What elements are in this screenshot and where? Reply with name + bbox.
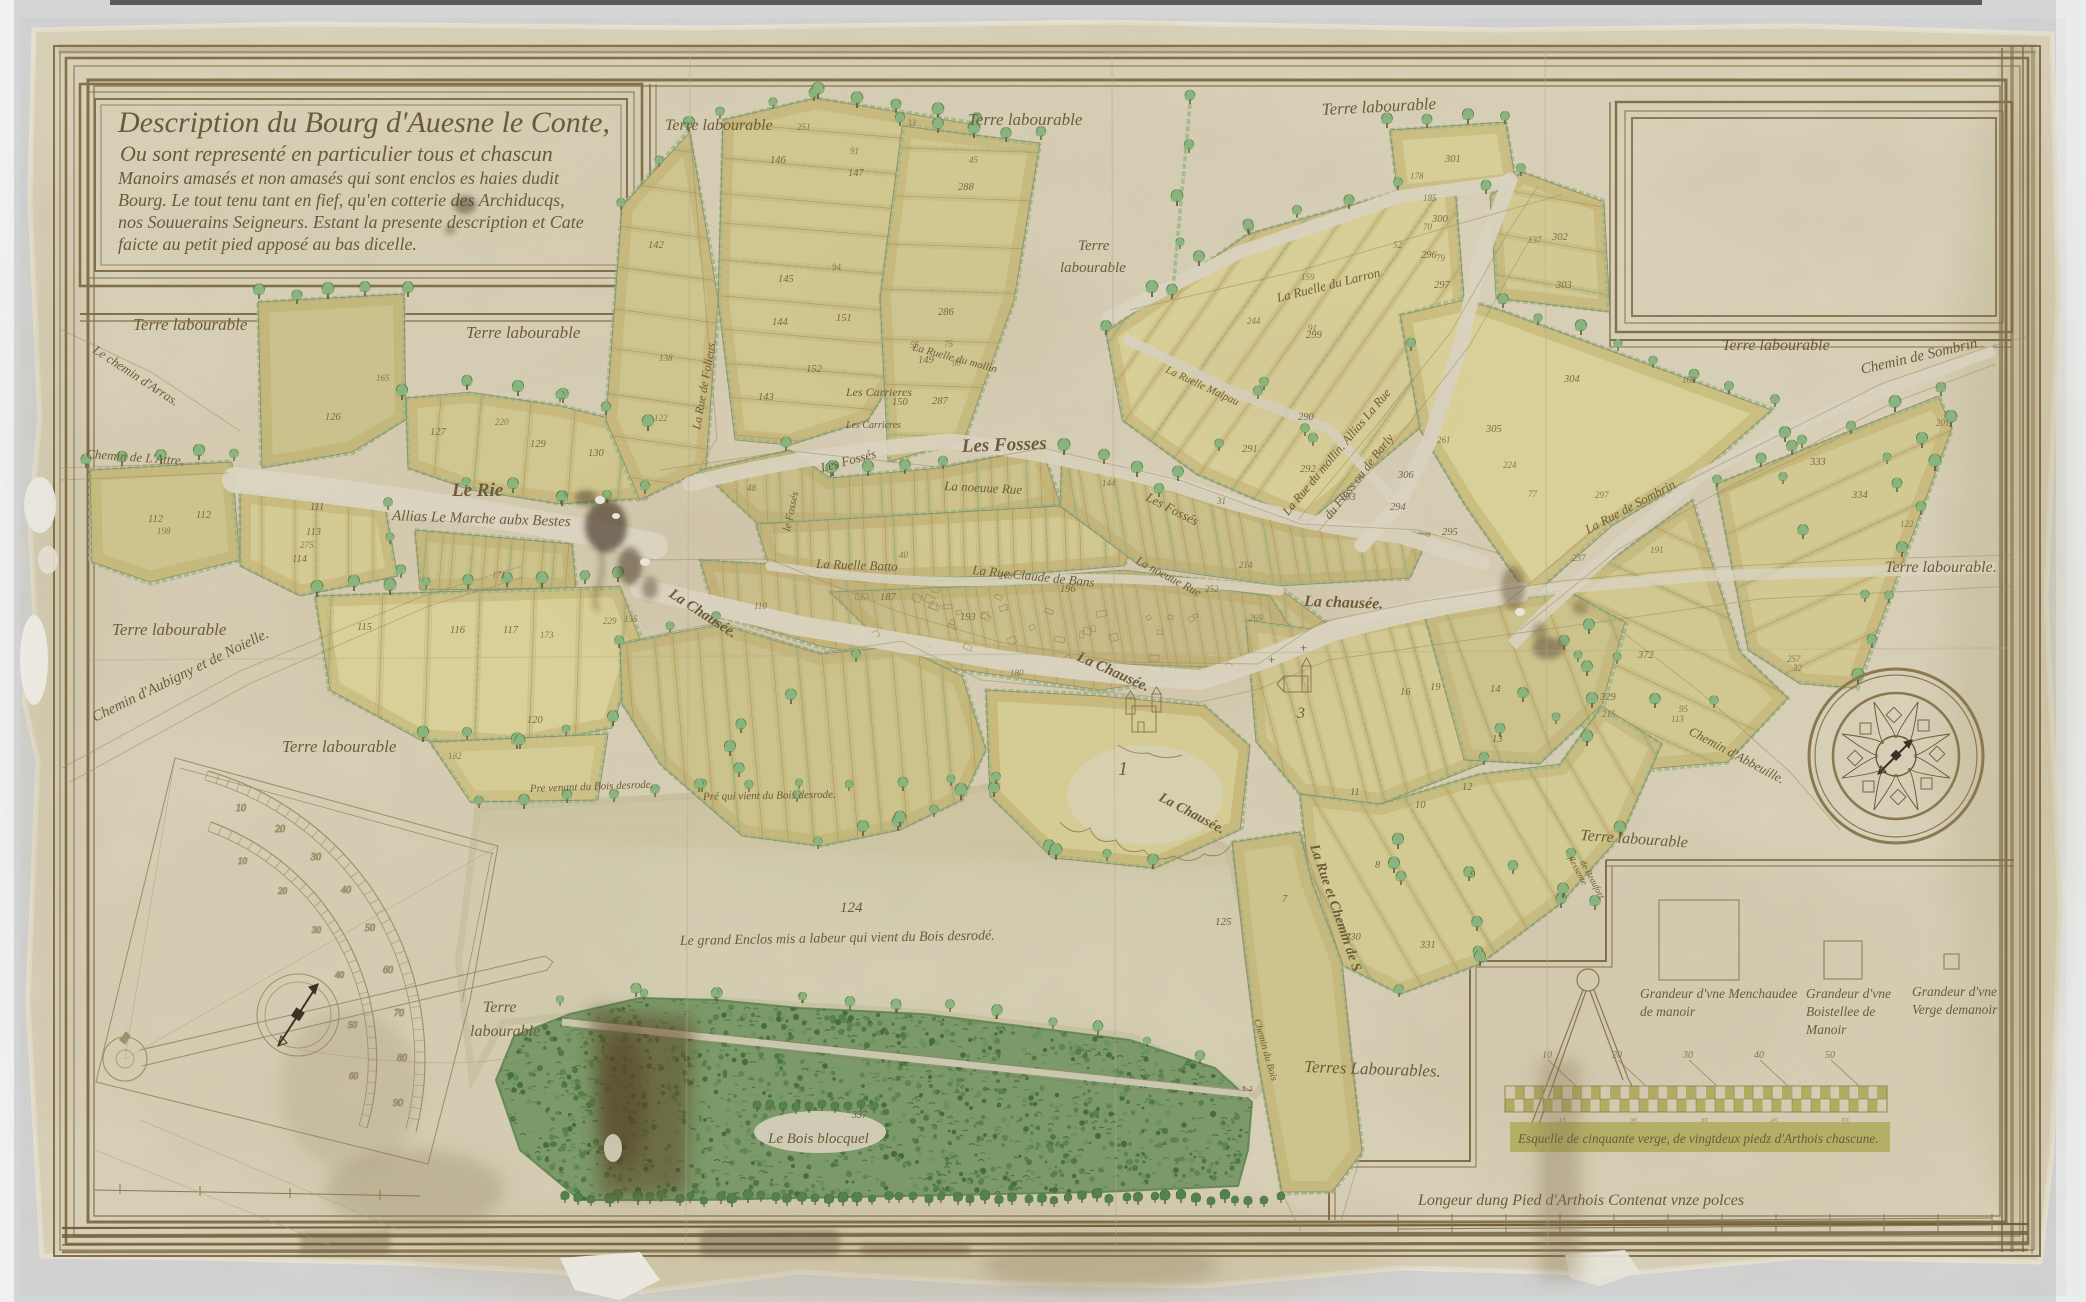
svg-text:185: 185 — [1423, 193, 1437, 203]
svg-text:124: 124 — [840, 900, 863, 916]
svg-text:196: 196 — [1060, 584, 1077, 595]
svg-text:159: 159 — [1301, 272, 1315, 282]
svg-text:70: 70 — [394, 1008, 404, 1019]
svg-text:135: 135 — [624, 614, 638, 624]
svg-text:75: 75 — [944, 339, 954, 349]
svg-text:12: 12 — [1462, 782, 1473, 793]
svg-text:faicte au petit pied apposé au: faicte au petit pied apposé au bas dicel… — [118, 234, 417, 254]
svg-text:337: 337 — [851, 1110, 868, 1121]
svg-text:10: 10 — [236, 803, 246, 814]
svg-text:372: 372 — [1637, 650, 1655, 661]
svg-text:Grandeur d'vne: Grandeur d'vne — [1912, 984, 1997, 999]
svg-text:Manoir: Manoir — [1805, 1022, 1847, 1037]
svg-text:171: 171 — [492, 570, 506, 580]
svg-text:137: 137 — [1528, 235, 1542, 245]
svg-text:Grandeur d'vne: Grandeur d'vne — [1806, 986, 1891, 1001]
svg-text:297: 297 — [1434, 280, 1451, 291]
svg-text:50: 50 — [1825, 1050, 1835, 1061]
svg-text:Terre labourable: Terre labourable — [133, 315, 248, 334]
svg-text:30: 30 — [311, 925, 322, 935]
svg-text:287: 287 — [932, 396, 949, 407]
svg-text:de manoir: de manoir — [1640, 1004, 1696, 1019]
svg-text:117: 117 — [503, 625, 519, 636]
svg-text:Grandeur d'vne Menchaudee: Grandeur d'vne Menchaudee — [1640, 986, 1797, 1001]
svg-text:Verge demanoir: Verge demanoir — [1912, 1002, 1998, 1017]
svg-text:304: 304 — [1563, 374, 1581, 385]
svg-text:7: 7 — [1282, 894, 1288, 905]
svg-text:178: 178 — [1410, 171, 1424, 181]
svg-text:302: 302 — [1551, 232, 1569, 243]
svg-text:169: 169 — [1682, 375, 1696, 385]
svg-text:30: 30 — [1682, 1050, 1693, 1061]
svg-text:130: 130 — [588, 448, 605, 459]
svg-text:91: 91 — [850, 146, 859, 156]
svg-text:198: 198 — [157, 526, 171, 536]
svg-text:labourable: labourable — [1060, 260, 1126, 276]
svg-text:79: 79 — [1436, 253, 1446, 263]
svg-text:13: 13 — [1492, 734, 1503, 745]
svg-text:20: 20 — [1612, 1050, 1622, 1061]
svg-text:Manoirs amasés et non amasés q: Manoirs amasés et non amasés qui sont en… — [117, 168, 560, 188]
svg-text:Terre labourable.: Terre labourable. — [1885, 559, 1997, 576]
svg-text:Terre labourable: Terre labourable — [282, 737, 397, 756]
svg-text:110: 110 — [754, 601, 767, 611]
svg-text:50: 50 — [365, 923, 375, 934]
svg-text:142: 142 — [648, 240, 665, 251]
svg-text:11: 11 — [1350, 787, 1360, 798]
svg-text:nos Souuerains Seigneurs. Esta: nos Souuerains Seigneurs. Estant la pres… — [118, 212, 584, 232]
svg-text:90: 90 — [952, 358, 962, 368]
svg-text:220: 220 — [495, 417, 509, 427]
svg-text:32: 32 — [1792, 663, 1803, 673]
svg-text:122: 122 — [654, 413, 668, 423]
svg-text:16: 16 — [1400, 687, 1411, 698]
svg-text:40: 40 — [1754, 1050, 1764, 1061]
svg-text:187: 187 — [880, 592, 897, 603]
svg-text:224: 224 — [1503, 460, 1517, 470]
svg-text:214: 214 — [1239, 560, 1253, 570]
svg-text:14: 14 — [1490, 684, 1501, 695]
svg-text:300: 300 — [1431, 214, 1449, 225]
svg-text:193: 193 — [960, 612, 976, 623]
svg-text:Terre labourable: Terre labourable — [466, 323, 581, 342]
svg-text:149: 149 — [918, 355, 935, 366]
svg-text:297: 297 — [1595, 490, 1609, 500]
svg-text:305: 305 — [1485, 424, 1502, 435]
svg-text:173: 173 — [540, 630, 554, 640]
svg-text:116: 116 — [450, 625, 466, 636]
svg-text:294: 294 — [1390, 502, 1407, 513]
svg-text:144: 144 — [772, 317, 789, 328]
svg-text:120: 120 — [527, 715, 544, 726]
svg-text:329: 329 — [1599, 692, 1617, 703]
svg-text:301: 301 — [1444, 154, 1461, 165]
svg-text:+: + — [1268, 652, 1275, 667]
svg-text:40: 40 — [899, 550, 909, 560]
svg-text:20: 20 — [275, 824, 285, 835]
svg-text:291: 291 — [1242, 444, 1258, 455]
svg-text:3: 3 — [1296, 705, 1305, 722]
svg-text:146: 146 — [770, 155, 787, 166]
svg-text:94: 94 — [832, 262, 842, 272]
svg-text:60: 60 — [383, 965, 393, 976]
svg-text:Boistellee de: Boistellee de — [1806, 1004, 1875, 1019]
svg-text:150: 150 — [892, 397, 909, 408]
svg-text:19: 19 — [1430, 682, 1441, 693]
svg-text:292: 292 — [1300, 464, 1317, 475]
svg-text:91: 91 — [1308, 323, 1317, 333]
svg-text:143: 143 — [758, 392, 774, 403]
svg-text:Terre: Terre — [1078, 238, 1110, 254]
svg-text:Terre labourable: Terre labourable — [665, 117, 773, 134]
svg-text:127: 127 — [430, 427, 447, 438]
svg-text:290: 290 — [1298, 412, 1315, 423]
svg-text:La chausée.: La chausée. — [1303, 593, 1384, 613]
svg-text:252: 252 — [1205, 584, 1219, 594]
svg-text:33: 33 — [906, 118, 917, 128]
svg-text:145: 145 — [778, 274, 794, 285]
svg-text:261: 261 — [1437, 435, 1451, 445]
svg-text:48: 48 — [747, 483, 757, 493]
svg-text:288: 288 — [958, 182, 975, 193]
svg-text:40: 40 — [341, 885, 351, 896]
svg-text:Le Rie: Le Rie — [451, 480, 504, 501]
svg-text:Le Bois blocquel: Le Bois blocquel — [767, 1131, 869, 1147]
svg-text:Description du Bourg d'Auesne: Description du Bourg d'Auesne le Conte, — [117, 106, 610, 139]
svg-text:303: 303 — [1555, 280, 1572, 291]
svg-text:52: 52 — [1393, 240, 1403, 250]
svg-text:333: 333 — [1809, 457, 1826, 468]
svg-text:113: 113 — [1671, 714, 1684, 724]
svg-text:labourable: labourable — [470, 1023, 540, 1040]
svg-text:244: 244 — [1247, 316, 1261, 326]
svg-text:Pré qui vient du Bois desrode.: Pré qui vient du Bois desrode. — [702, 789, 836, 803]
svg-text:229: 229 — [603, 616, 617, 626]
svg-text:251: 251 — [797, 122, 811, 132]
svg-text:Terre: Terre — [483, 999, 517, 1016]
svg-text:138: 138 — [659, 353, 673, 363]
svg-text:10: 10 — [1415, 800, 1426, 811]
svg-text:152: 152 — [806, 364, 823, 375]
svg-text:Ou sont representé en particul: Ou sont representé en particulier tous e… — [120, 141, 553, 166]
svg-text:95: 95 — [1679, 704, 1689, 714]
svg-text:122: 122 — [1900, 519, 1914, 529]
svg-text:Bourg. Le tout tenu tant en fi: Bourg. Le tout tenu tant en fief, qu'en … — [118, 190, 565, 210]
svg-text:31: 31 — [1216, 496, 1226, 506]
svg-text:191: 191 — [1650, 545, 1664, 555]
svg-text:Terre labourable: Terre labourable — [968, 110, 1083, 129]
svg-text:269: 269 — [1249, 613, 1263, 623]
svg-text:77: 77 — [1528, 489, 1538, 499]
svg-text:151: 151 — [836, 313, 852, 324]
svg-text:Terre labourable: Terre labourable — [1722, 337, 1830, 354]
svg-text:125: 125 — [1215, 916, 1232, 928]
svg-text:30: 30 — [310, 852, 321, 863]
svg-text:1: 1 — [1118, 758, 1128, 780]
svg-text:215: 215 — [1602, 709, 1616, 719]
svg-text:113: 113 — [306, 527, 321, 538]
svg-text:165: 165 — [376, 373, 390, 383]
svg-text:Longeur dung Pied d'Arthois C: Longeur dung Pied d'Arthois Contenat vnz… — [1417, 1192, 1744, 1209]
svg-text:70: 70 — [1423, 222, 1433, 232]
svg-text:40: 40 — [335, 970, 345, 980]
svg-text:147: 147 — [848, 168, 865, 179]
svg-text:111: 111 — [310, 502, 324, 513]
svg-text:Terre labourable: Terre labourable — [112, 620, 227, 639]
svg-text:180: 180 — [1010, 668, 1024, 678]
svg-text:112: 112 — [148, 514, 164, 525]
svg-text:115: 115 — [357, 622, 372, 633]
svg-text:45: 45 — [969, 155, 979, 165]
svg-text:306: 306 — [1397, 470, 1415, 481]
svg-text:112: 112 — [196, 510, 212, 521]
svg-text:Les Fosses: Les Fosses — [960, 433, 1047, 457]
svg-text:334: 334 — [1851, 490, 1869, 501]
svg-text:8: 8 — [1375, 860, 1381, 871]
svg-text:275: 275 — [300, 540, 314, 550]
svg-text:330: 330 — [1344, 932, 1362, 943]
svg-text:293: 293 — [1340, 492, 1356, 503]
svg-text:9: 9 — [1470, 870, 1476, 881]
svg-text:295: 295 — [1442, 527, 1458, 538]
svg-text:126: 126 — [325, 412, 342, 423]
svg-text:La Ruelle Batto: La Ruelle Batto — [815, 556, 899, 574]
svg-text:Les Carrieres: Les Carrieres — [845, 420, 901, 431]
svg-text:129: 129 — [530, 439, 547, 450]
svg-text:10: 10 — [238, 856, 248, 866]
svg-text:55: 55 — [910, 340, 920, 350]
svg-text:286: 286 — [938, 307, 955, 318]
svg-text:218: 218 — [999, 571, 1013, 581]
svg-text:331: 331 — [1419, 940, 1436, 951]
svg-text:20: 20 — [278, 886, 288, 896]
svg-text:201: 201 — [1936, 418, 1950, 428]
svg-text:114: 114 — [292, 554, 308, 565]
svg-text:182: 182 — [448, 751, 462, 761]
svg-text:237: 237 — [1572, 553, 1586, 563]
